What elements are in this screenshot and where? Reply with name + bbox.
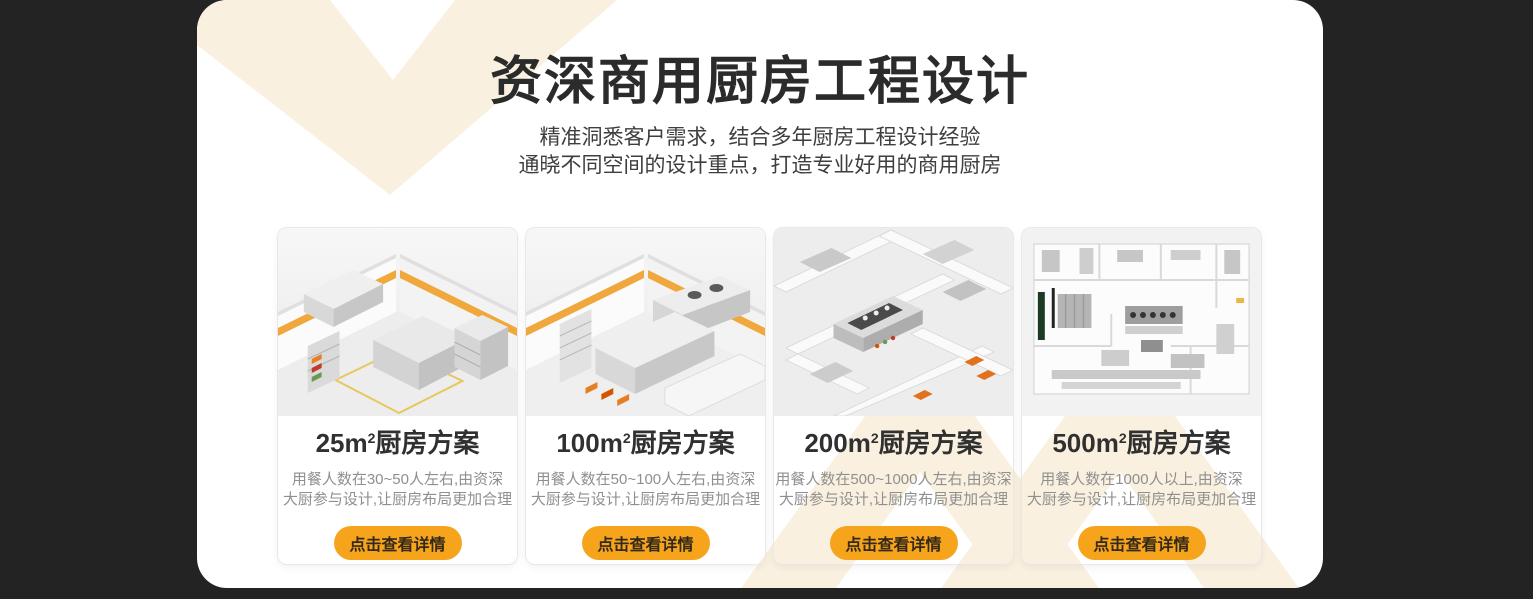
- plan-card-body: 25m2厨房方案 用餐人数在30~50人左右,由资深 大厨参与设计,让厨房布局更…: [278, 416, 517, 560]
- section-header: 资深商用厨房工程设计 精准洞悉客户需求，结合多年厨房工程设计经验 通晓不同空间的…: [197, 0, 1323, 180]
- kitchen-render-25: [278, 228, 517, 416]
- view-details-button[interactable]: 点击查看详情: [1078, 526, 1206, 560]
- plan-card-description: 用餐人数在500~1000人左右,由资深 大厨参与设计,让厨房布局更加合理: [774, 470, 1013, 510]
- plan-card-description: 用餐人数在30~50人左右,由资深 大厨参与设计,让厨房布局更加合理: [278, 470, 517, 510]
- page-background: 资深商用厨房工程设计 精准洞悉客户需求，结合多年厨房工程设计经验 通晓不同空间的…: [0, 0, 1533, 599]
- subtitle-line-2: 通晓不同空间的设计重点，打造专业好用的商用厨房: [197, 152, 1323, 180]
- plan-card-100[interactable]: 100m2厨房方案 用餐人数在50~100人左右,由资深 大厨参与设计,让厨房布…: [525, 227, 766, 565]
- kitchen-render-500: [1022, 228, 1261, 416]
- plan-card-25[interactable]: 25m2厨房方案 用餐人数在30~50人左右,由资深 大厨参与设计,让厨房布局更…: [277, 227, 518, 565]
- plan-card-200[interactable]: 200m2厨房方案 用餐人数在500~1000人左右,由资深 大厨参与设计,让厨…: [773, 227, 1014, 565]
- kitchen-render-100: [526, 228, 765, 416]
- view-details-button[interactable]: 点击查看详情: [334, 526, 462, 560]
- view-details-button[interactable]: 点击查看详情: [582, 526, 710, 560]
- plan-card-title: 200m2厨房方案: [774, 428, 1013, 462]
- view-details-button[interactable]: 点击查看详情: [830, 526, 958, 560]
- subtitle-line-1: 精准洞悉客户需求，结合多年厨房工程设计经验: [197, 124, 1323, 152]
- plan-card-title: 25m2厨房方案: [278, 428, 517, 462]
- plan-card-description: 用餐人数在50~100人左右,由资深 大厨参与设计,让厨房布局更加合理: [526, 470, 765, 510]
- plan-card-body: 500m2厨房方案 用餐人数在1000人以上,由资深 大厨参与设计,让厨房布局更…: [1022, 416, 1261, 560]
- kitchen-render-200: [774, 228, 1013, 416]
- plan-card-title: 500m2厨房方案: [1022, 428, 1261, 462]
- plan-card-title: 100m2厨房方案: [526, 428, 765, 462]
- plan-card-description: 用餐人数在1000人以上,由资深 大厨参与设计,让厨房布局更加合理: [1022, 470, 1261, 510]
- plan-card-row: 25m2厨房方案 用餐人数在30~50人左右,由资深 大厨参与设计,让厨房布局更…: [277, 227, 1262, 565]
- plan-card-body: 200m2厨房方案 用餐人数在500~1000人左右,由资深 大厨参与设计,让厨…: [774, 416, 1013, 560]
- plan-card-500[interactable]: 500m2厨房方案 用餐人数在1000人以上,由资深 大厨参与设计,让厨房布局更…: [1021, 227, 1262, 565]
- page-title: 资深商用厨房工程设计: [197, 52, 1323, 112]
- content-panel: 资深商用厨房工程设计 精准洞悉客户需求，结合多年厨房工程设计经验 通晓不同空间的…: [197, 0, 1323, 588]
- plan-card-body: 100m2厨房方案 用餐人数在50~100人左右,由资深 大厨参与设计,让厨房布…: [526, 416, 765, 560]
- section-subtitle: 精准洞悉客户需求，结合多年厨房工程设计经验 通晓不同空间的设计重点，打造专业好用…: [197, 124, 1323, 180]
